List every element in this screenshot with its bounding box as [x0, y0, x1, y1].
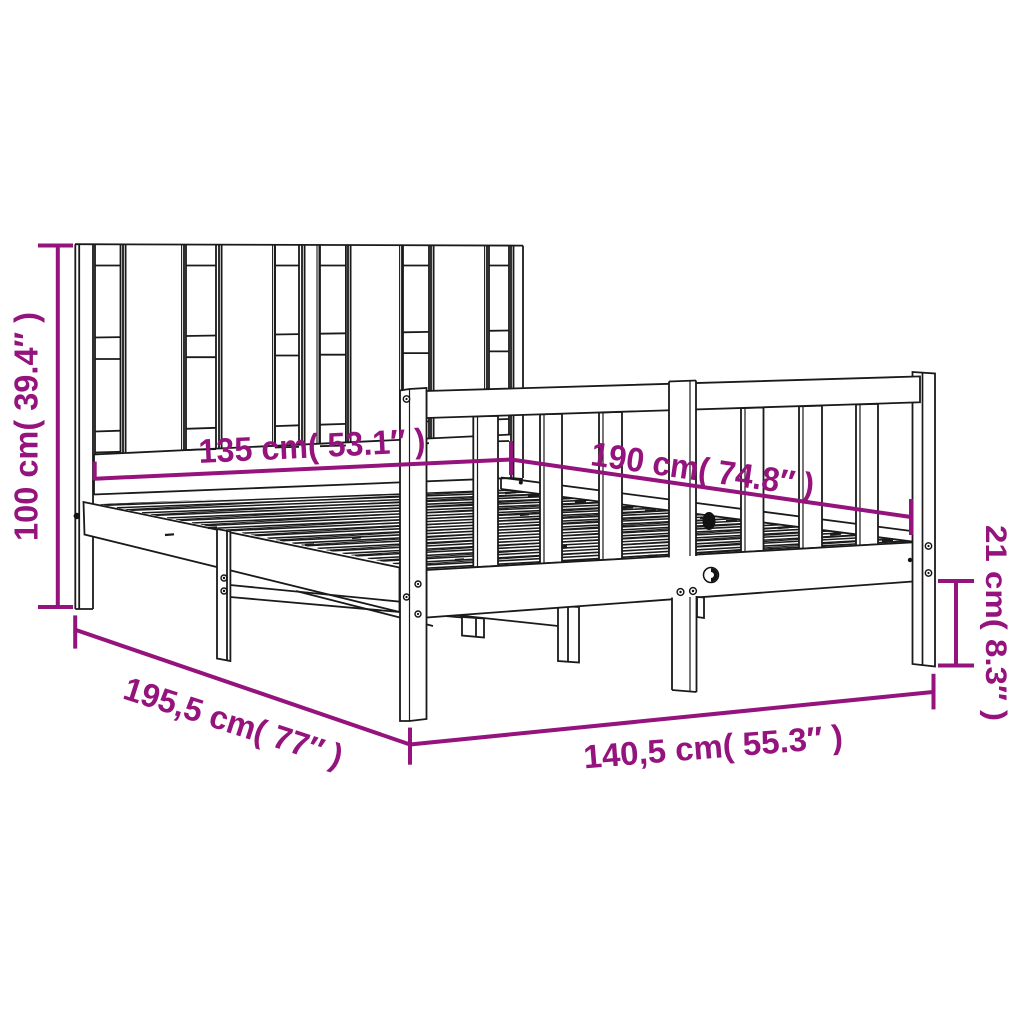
svg-text:21 cm( 8.3″ ): 21 cm( 8.3″ ): [979, 525, 1012, 721]
svg-text:100 cm( 39.4″ ): 100 cm( 39.4″ ): [8, 312, 45, 541]
